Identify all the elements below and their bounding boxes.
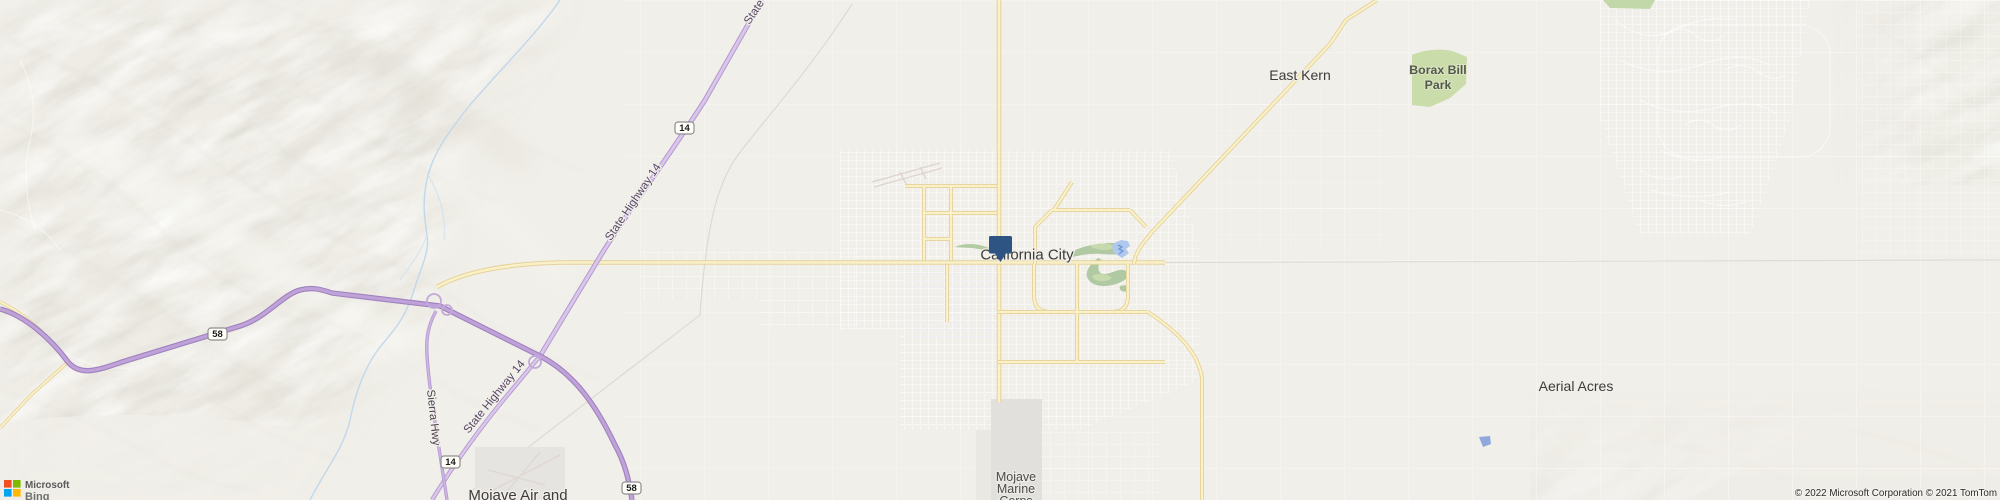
svg-text:East Kern: East Kern	[1269, 67, 1330, 83]
svg-text:58: 58	[626, 483, 637, 494]
svg-text:Bing: Bing	[25, 491, 49, 500]
svg-text:Corps: Corps	[999, 494, 1032, 500]
svg-text:58: 58	[212, 329, 223, 340]
svg-text:Borax Bill: Borax Bill	[1409, 63, 1466, 77]
svg-text:Mojave Air and: Mojave Air and	[468, 487, 567, 500]
svg-text:Aerial Acres: Aerial Acres	[1539, 378, 1614, 394]
svg-text:Microsoft: Microsoft	[25, 480, 70, 491]
svg-text:14: 14	[445, 457, 456, 468]
svg-text:Park: Park	[1425, 78, 1452, 92]
svg-text:© 2022 Microsoft Corporation ©: © 2022 Microsoft Corporation © 2021 TomT…	[1795, 488, 1997, 499]
svg-text:14: 14	[679, 123, 690, 134]
